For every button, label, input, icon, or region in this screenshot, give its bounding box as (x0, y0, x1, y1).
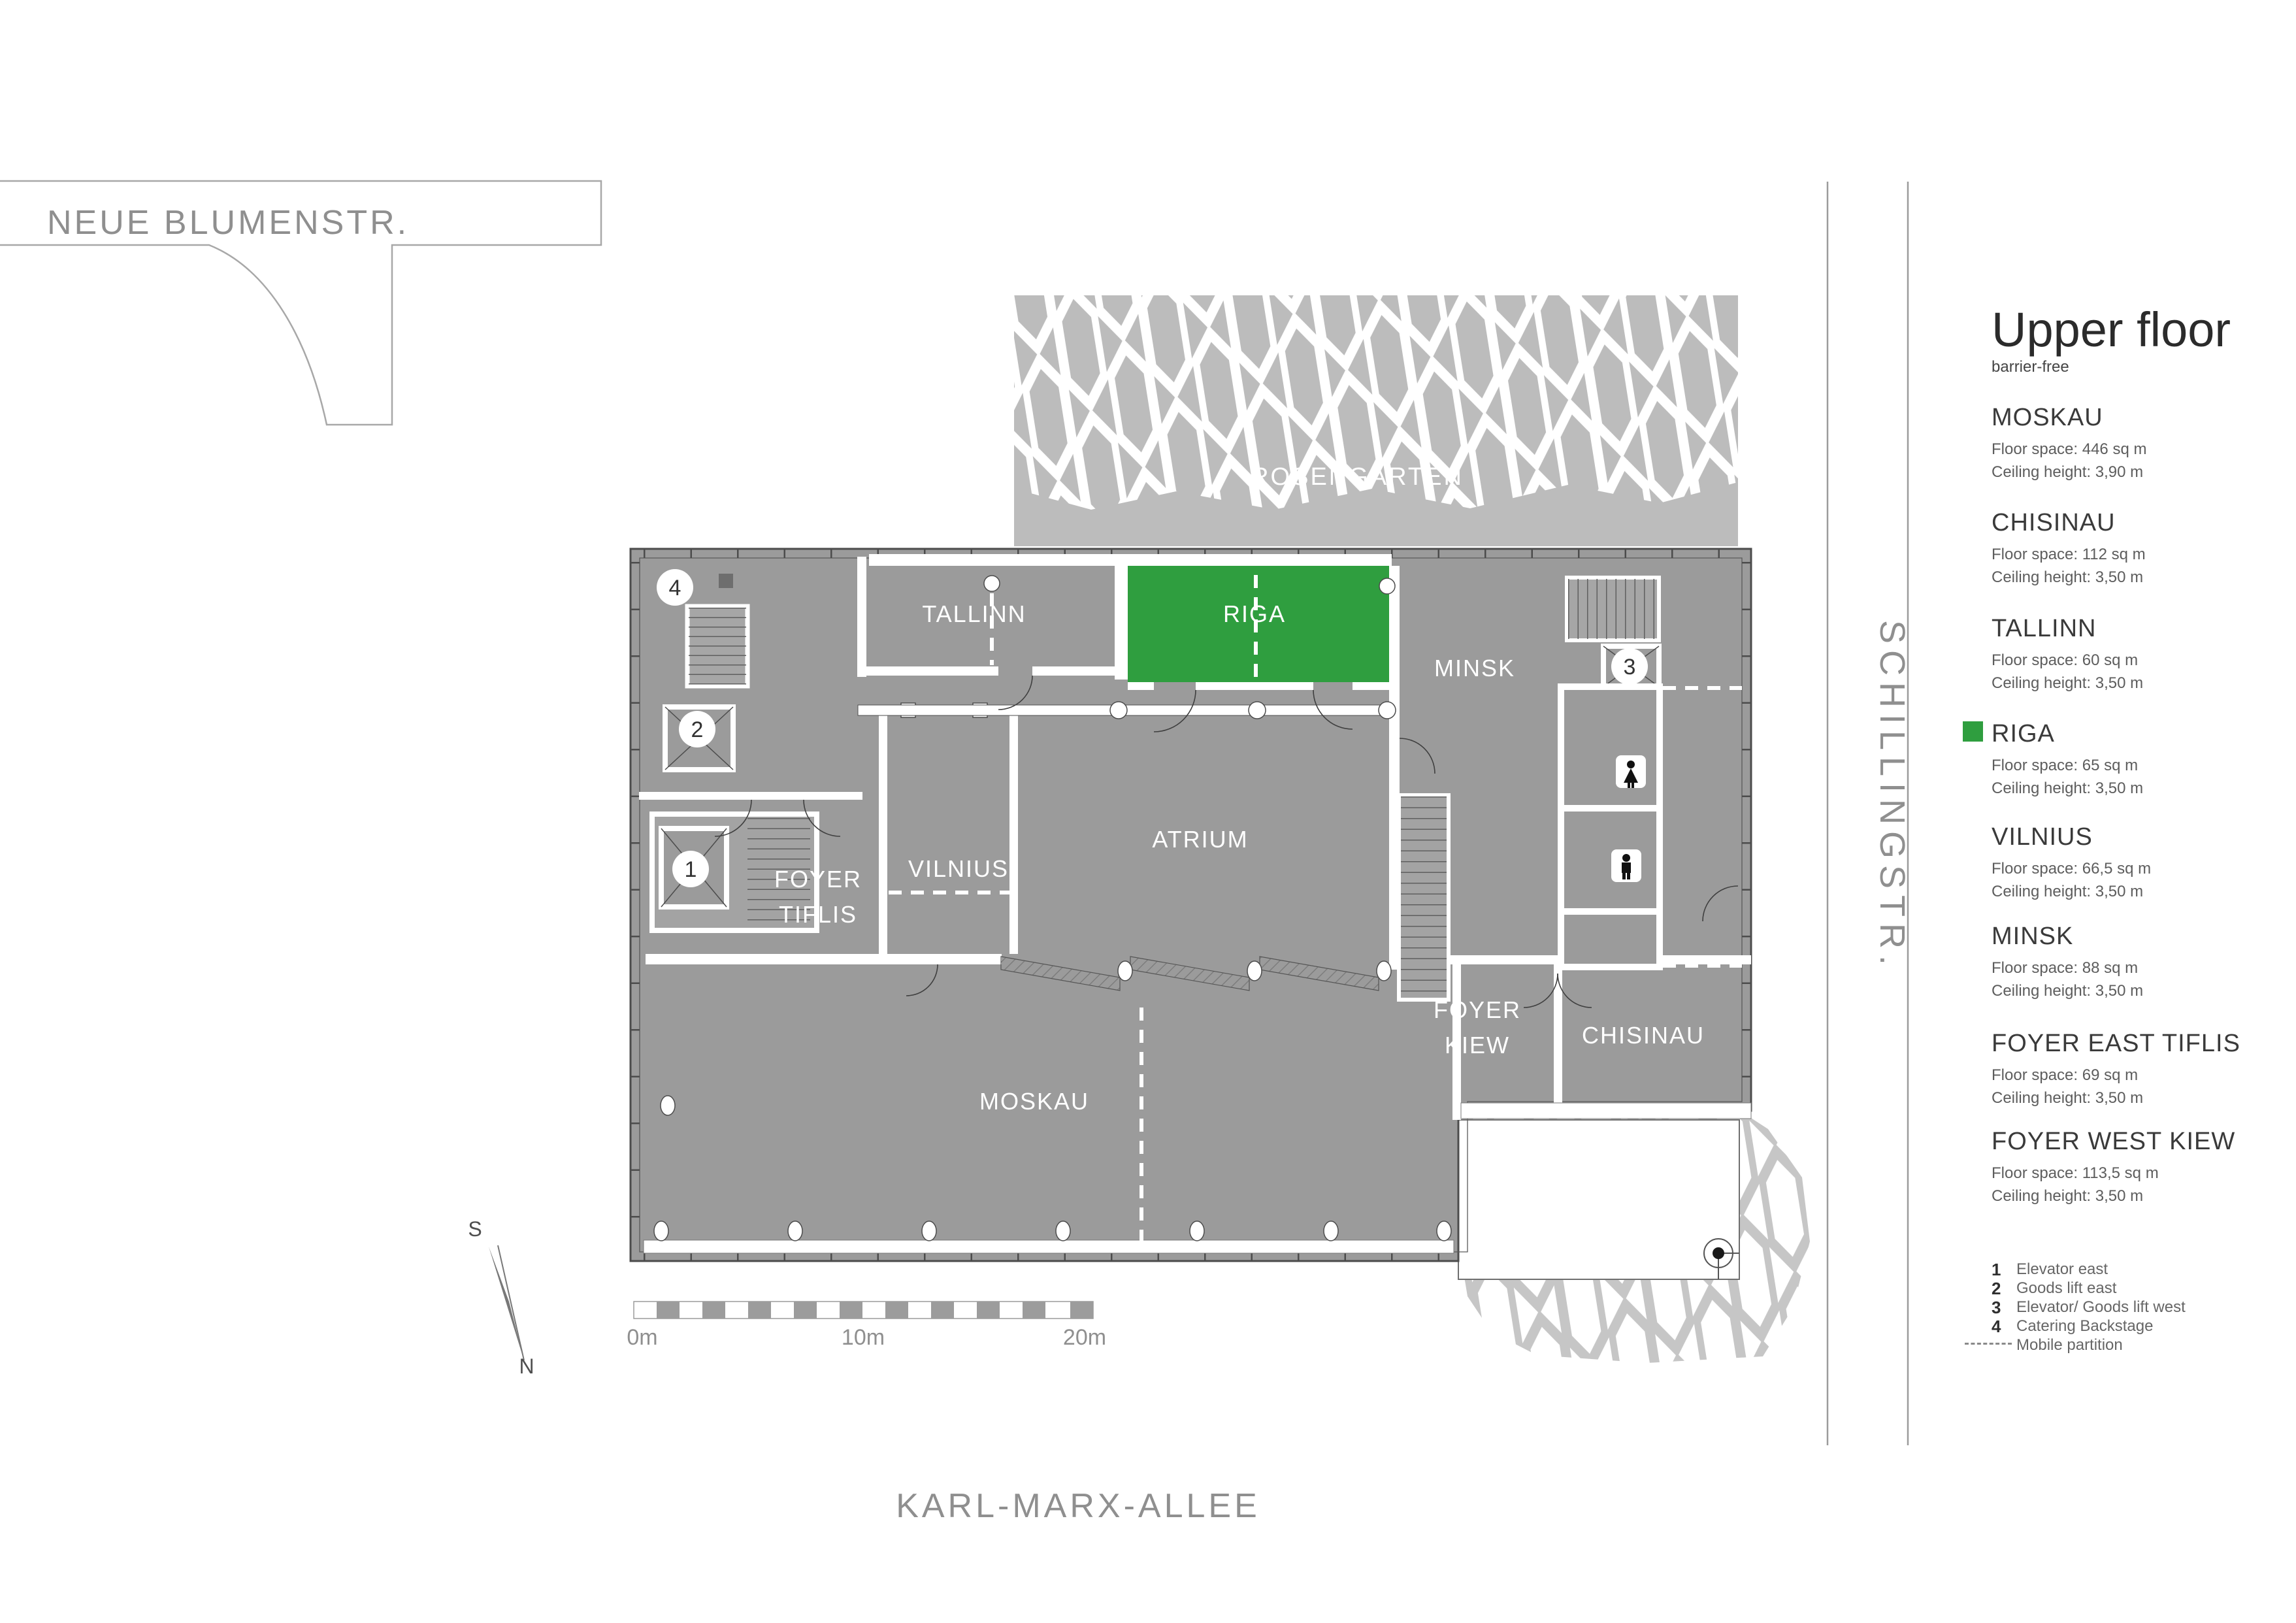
riga-highlight-swatch (1963, 721, 1983, 742)
dashed-line-icon (1965, 1343, 2012, 1345)
label-atrium: ATRIUM (1152, 826, 1248, 853)
legend-number: 4 (1992, 1317, 2001, 1337)
street-label-schillingstr: SCHILLINGSTR. (1873, 620, 1912, 972)
legend-goods-lift-east: 2 Goods lift east (1992, 1279, 2296, 1298)
stair-atrium-east (1399, 795, 1449, 1000)
room-floor-space: Floor space: 446 sq m (1992, 438, 2296, 461)
rosengarten-label: ROSENGARTEN (1251, 463, 1464, 491)
legend-label: Elevator east (1992, 1260, 2296, 1279)
room-floor-space: Floor space: 112 sq m (1992, 543, 2296, 566)
street-label-neue-blumenstr: NEUE BLUMENSTR. (47, 204, 409, 242)
legend-catering-backstage: 4 Catering Backstage (1992, 1317, 2296, 1336)
sidebar-entry-foyer-west-kiew: FOYER WEST KIEW Floor space: 113,5 sq m … (1992, 1128, 2296, 1207)
sidebar-entry-tallinn: TALLINN Floor space: 60 sq m Ceiling hei… (1992, 615, 2296, 695)
label-foyer-kiew-2: KIEW (1445, 1032, 1510, 1058)
legend-elevator-goods-lift-west: 3 Elevator/ Goods lift west (1992, 1298, 2296, 1317)
room-floor-space: Floor space: 60 sq m (1992, 649, 2296, 672)
rosengarten-area: ROSENGARTEN (1014, 295, 1738, 546)
floor-plan-drawing: ROSENGARTEN (0, 0, 2296, 1623)
room-ceiling-height: Ceiling height: 3,50 m (1992, 1087, 2296, 1109)
legend-number: 1 (1992, 1260, 2001, 1280)
south-garden-hatch (1458, 1103, 1810, 1363)
legend-number: 3 (1992, 1298, 2001, 1318)
legend-label: Mobile partition (1992, 1336, 2296, 1354)
stair-backstage (687, 606, 747, 686)
marker-2: 2 (691, 717, 704, 742)
scale-bar: 0m 10m 20m (627, 1302, 1106, 1350)
compass-north-label: N (519, 1354, 534, 1378)
street-label-karl-marx-allee: KARL-MARX-ALLEE (896, 1487, 1260, 1525)
compass-south-label: S (468, 1217, 482, 1241)
legend-elevator-east: 1 Elevator east (1992, 1260, 2296, 1279)
marker-4: 4 (669, 576, 681, 600)
room-floor-space: Floor space: 88 sq m (1992, 957, 2296, 979)
wc-women-icon (1616, 755, 1646, 788)
room-ceiling-height: Ceiling height: 3,90 m (1992, 461, 2296, 484)
legend-label: Elevator/ Goods lift west (1992, 1298, 2296, 1317)
sidebar-entry-vilnius: VILNIUS Floor space: 66,5 sq m Ceiling h… (1992, 823, 2296, 903)
room-floor-space: Floor space: 66,5 sq m (1992, 857, 2296, 880)
legend-label: Goods lift east (1992, 1279, 2296, 1298)
room-ceiling-height: Ceiling height: 3,50 m (1992, 672, 2296, 695)
label-vilnius: VILNIUS (908, 855, 1009, 882)
label-foyer-kiew-1: FOYER (1434, 996, 1521, 1023)
wc-block (1561, 687, 1660, 967)
marker-3: 3 (1624, 655, 1636, 680)
compass-needle (489, 1247, 524, 1360)
sidebar-entry-minsk: MINSK Floor space: 88 sq m Ceiling heigh… (1992, 923, 2296, 1002)
room-ceiling-height: Ceiling height: 3,50 m (1992, 777, 2296, 800)
compass: S N (468, 1217, 534, 1378)
sidebar-title-block: Upper floor barrier-free (1992, 306, 2296, 376)
page-title: Upper floor (1992, 306, 2296, 354)
sidebar-entry-moskau: MOSKAU Floor space: 446 sq m Ceiling hei… (1992, 404, 2296, 484)
room-name: VILNIUS (1992, 823, 2296, 851)
wc-men-icon (1611, 849, 1641, 882)
label-riga: RIGA (1223, 600, 1286, 627)
legend-mobile-partition: Mobile partition (1992, 1336, 2296, 1354)
room-name: CHISINAU (1992, 509, 2296, 537)
room-ceiling-height: Ceiling height: 3,50 m (1992, 979, 2296, 1002)
legend-number: 2 (1992, 1279, 2001, 1299)
legend-label: Catering Backstage (1992, 1317, 2296, 1336)
sidebar-entry-riga: RIGA Floor space: 65 sq m Ceiling height… (1992, 720, 2296, 800)
label-minsk: MINSK (1434, 655, 1515, 681)
label-foyer-tiflis-1: FOYER (774, 866, 862, 893)
floor-plan-page: ROSENGARTEN (0, 0, 2296, 1623)
page-subtitle: barrier-free (1992, 358, 2296, 376)
label-chisinau: CHISINAU (1582, 1022, 1705, 1049)
scale-20m: 20m (1063, 1325, 1106, 1350)
label-foyer-tiflis-2: TIFLIS (779, 901, 857, 928)
scale-10m: 10m (842, 1325, 885, 1350)
room-floor-space: Floor space: 113,5 sq m (1992, 1162, 2296, 1185)
room-name: MOSKAU (1992, 404, 2296, 432)
room-floor-space: Floor space: 65 sq m (1992, 754, 2296, 777)
label-tallinn: TALLINN (922, 600, 1026, 627)
sidebar-entry-chisinau: CHISINAU Floor space: 112 sq m Ceiling h… (1992, 509, 2296, 589)
room-name: TALLINN (1992, 615, 2296, 643)
marker-1: 1 (685, 857, 697, 882)
sidebar-entry-foyer-east-tiflis: FOYER EAST TIFLIS Floor space: 69 sq m C… (1992, 1030, 2296, 1109)
room-ceiling-height: Ceiling height: 3,50 m (1992, 566, 2296, 589)
scale-0m: 0m (627, 1325, 657, 1350)
room-name: FOYER EAST TIFLIS (1992, 1030, 2296, 1058)
terrace (1458, 1120, 1739, 1279)
room-name: FOYER WEST KIEW (1992, 1128, 2296, 1156)
room-ceiling-height: Ceiling height: 3,50 m (1992, 1185, 2296, 1207)
label-moskau: MOSKAU (979, 1088, 1089, 1115)
room-floor-space: Floor space: 69 sq m (1992, 1064, 2296, 1087)
room-ceiling-height: Ceiling height: 3,50 m (1992, 880, 2296, 903)
room-name: RIGA (1992, 720, 2296, 748)
room-name: MINSK (1992, 923, 2296, 951)
